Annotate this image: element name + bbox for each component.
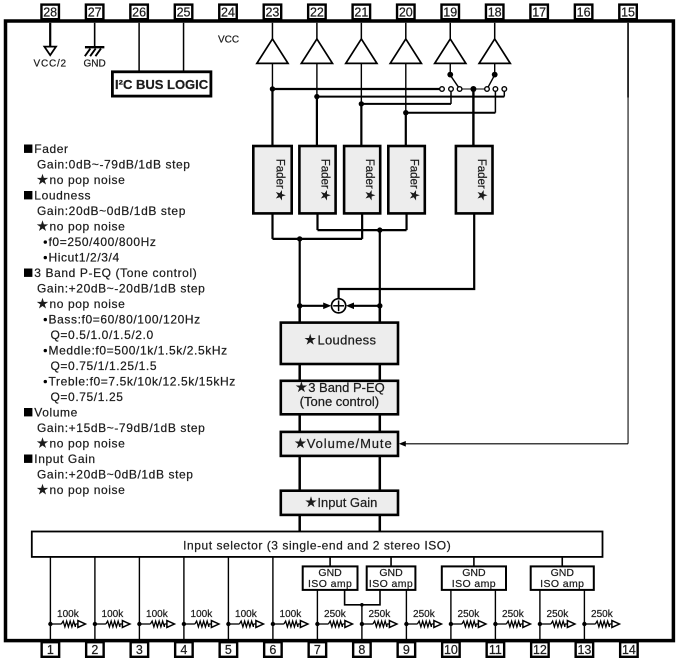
svg-text:GND: GND [84,59,106,70]
svg-text:Hicut1/2/3/4: Hicut1/2/3/4 [49,250,120,264]
svg-text:3: 3 [136,643,143,657]
svg-text:5: 5 [225,643,232,657]
svg-text:Input Gain: Input Gain [317,495,377,510]
svg-text:26: 26 [132,5,146,19]
svg-text:10: 10 [444,643,458,657]
svg-text:12: 12 [533,643,547,657]
svg-text:no pop noise: no pop noise [50,173,126,187]
svg-text:100k: 100k [191,609,214,620]
svg-text:Bass:f0=60/80/100/120Hz: Bass:f0=60/80/100/120Hz [49,312,201,326]
svg-text:Fader: Fader [319,159,331,189]
svg-text:19: 19 [443,5,457,19]
svg-text:250k: 250k [324,609,347,620]
svg-text:7: 7 [314,643,321,657]
svg-text:250k: 250k [458,609,481,620]
svg-text:ISO amp: ISO amp [308,578,352,590]
svg-text:100k: 100k [146,609,169,620]
svg-text:24: 24 [221,5,235,19]
svg-text:27: 27 [88,5,102,19]
svg-text:8: 8 [358,643,365,657]
svg-text:Q=0.75/1/1.25/1.5: Q=0.75/1/1.25/1.5 [51,359,158,373]
svg-text:Fader: Fader [363,159,375,189]
svg-text:I²C BUS LOGIC: I²C BUS LOGIC [115,77,209,92]
svg-text:22: 22 [310,5,324,19]
svg-text:no pop noise: no pop noise [50,297,126,311]
svg-text:16: 16 [577,5,591,19]
svg-text:Q=0.75/1.25: Q=0.75/1.25 [51,390,124,404]
svg-text:no pop noise: no pop noise [50,436,126,450]
svg-text:f0=250/400/800Hz: f0=250/400/800Hz [49,235,157,249]
svg-text:VCC: VCC [218,34,239,45]
svg-text:23: 23 [265,5,279,19]
svg-text:18: 18 [488,5,502,19]
svg-text:(Tone control): (Tone control) [300,394,379,409]
svg-text:Meddle:f0=500/1k/1.5k/2.5kHz: Meddle:f0=500/1k/1.5k/2.5kHz [49,343,228,357]
svg-text:100k: 100k [235,609,258,620]
svg-text:ISO amp: ISO amp [369,578,413,590]
svg-text:100k: 100k [102,609,125,620]
svg-text:250k: 250k [547,609,570,620]
svg-text:Gain:+15dB~-79dB/1dB step: Gain:+15dB~-79dB/1dB step [37,421,205,435]
svg-text:Gain:+20dB~0dB/1dB step: Gain:+20dB~0dB/1dB step [37,467,194,481]
svg-text:Q=0.5/1.0/1.5/2.0: Q=0.5/1.0/1.5/2.0 [51,328,154,342]
svg-text:Loudness: Loudness [318,332,377,347]
svg-text:21: 21 [354,5,368,19]
svg-text:3 Band P-EQ: 3 Band P-EQ [308,380,385,395]
svg-text:100k: 100k [57,609,80,620]
svg-text:Loudness: Loudness [34,188,91,202]
svg-text:Fader: Fader [475,159,487,189]
svg-text:4: 4 [180,643,187,657]
svg-text:1: 1 [47,643,54,657]
svg-text:no pop noise: no pop noise [50,483,126,497]
svg-text:VCC/2: VCC/2 [33,59,66,70]
svg-text:15: 15 [621,5,635,19]
svg-text:no pop noise: no pop noise [50,219,126,233]
svg-text:Input Gain: Input Gain [34,452,95,466]
svg-text:Gain:+20dB~-20dB/1dB step: Gain:+20dB~-20dB/1dB step [37,281,205,295]
svg-text:250k: 250k [591,609,614,620]
svg-text:Fader: Fader [408,159,420,189]
svg-text:13: 13 [577,643,591,657]
svg-text:ISO amp: ISO amp [452,578,496,590]
svg-text:Fader: Fader [274,159,286,189]
svg-text:3 Band P-EQ (Tone control): 3 Band P-EQ (Tone control) [34,266,197,280]
svg-text:11: 11 [489,643,502,657]
svg-text:Volume: Volume [34,405,78,419]
svg-text:2: 2 [91,643,98,657]
svg-text:25: 25 [177,5,191,19]
svg-text:ISO amp: ISO amp [540,578,584,590]
svg-text:250k: 250k [502,609,525,620]
svg-text:20: 20 [399,5,413,19]
svg-text:Gain:20dB~0dB/1dB step: Gain:20dB~0dB/1dB step [37,204,186,218]
svg-text:17: 17 [532,5,546,19]
svg-text:Fader: Fader [34,142,68,156]
svg-text:100k: 100k [280,609,303,620]
svg-text:Input selector (3 single-end a: Input selector (3 single-end and 2 stere… [183,538,451,552]
svg-text:250k: 250k [369,609,392,620]
svg-text:14: 14 [622,643,636,657]
svg-text:9: 9 [403,643,410,657]
svg-text:Volume/Mute: Volume/Mute [307,436,393,451]
svg-text:250k: 250k [413,609,436,620]
svg-text:Treble:f0=7.5k/10k/12.5k/15kHz: Treble:f0=7.5k/10k/12.5k/15kHz [49,374,236,388]
svg-text:28: 28 [43,5,57,19]
svg-text:Gain:0dB~-79dB/1dB step: Gain:0dB~-79dB/1dB step [37,157,191,171]
svg-text:6: 6 [269,643,276,657]
